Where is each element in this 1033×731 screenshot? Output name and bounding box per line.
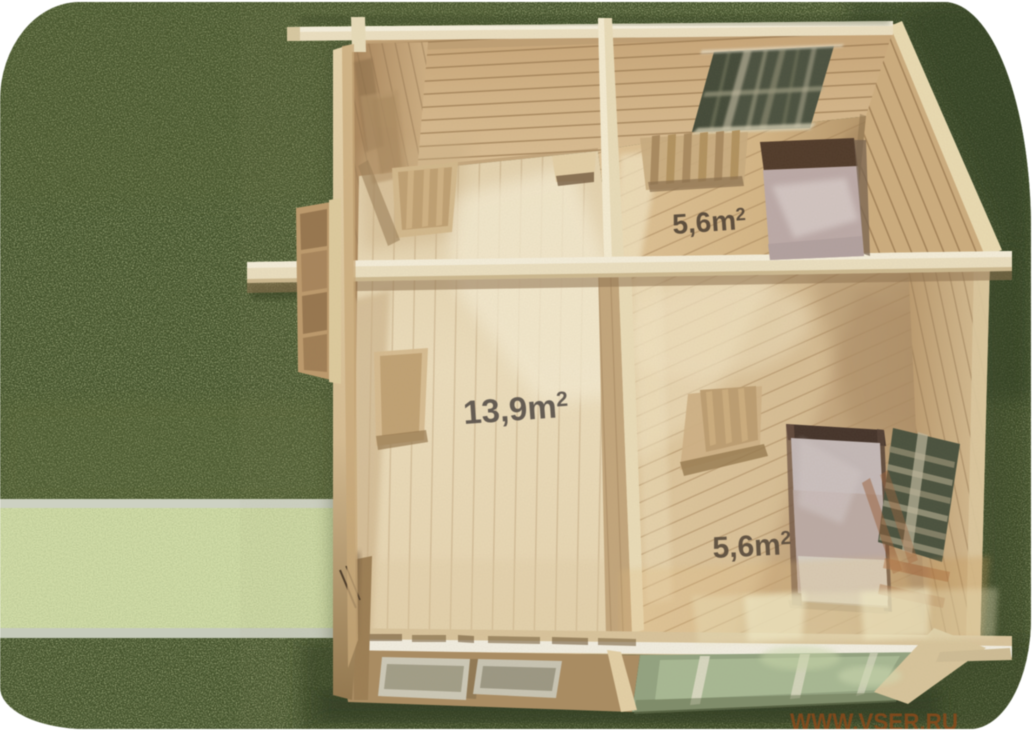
svg-text:WWW.VSER.RU: WWW.VSER.RU — [790, 709, 958, 731]
